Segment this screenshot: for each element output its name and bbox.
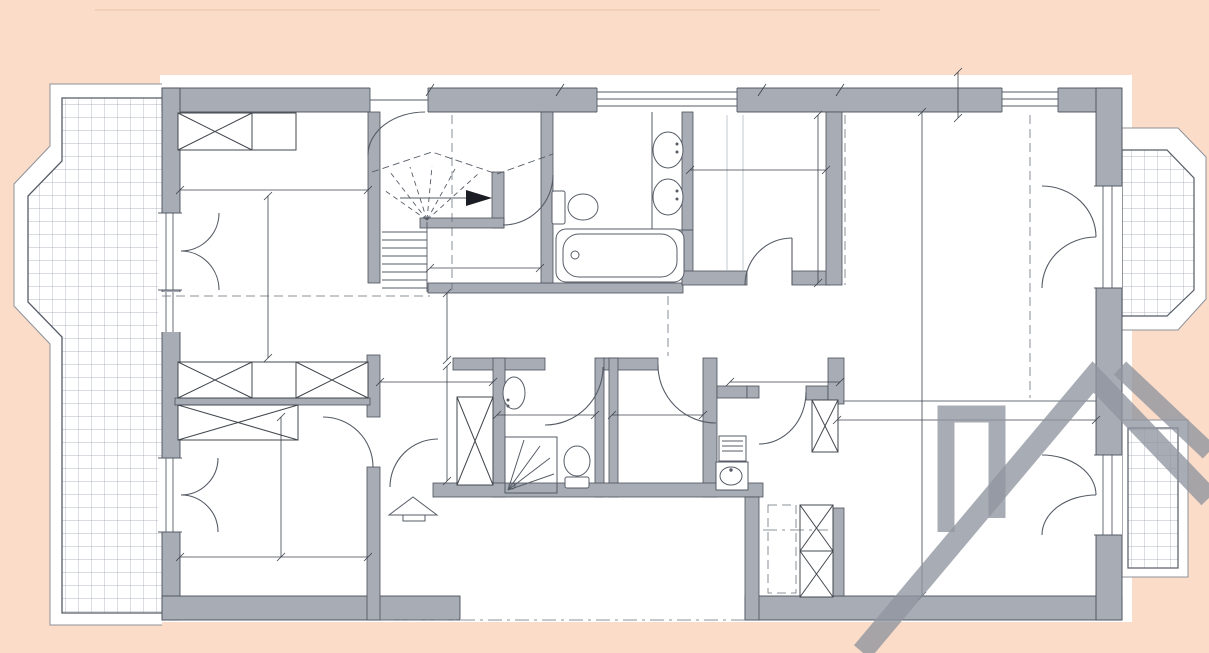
closet-hall — [457, 397, 493, 485]
floor-plan-drawing — [0, 0, 1209, 653]
washer-icon — [719, 436, 746, 461]
toilet-icon — [564, 446, 590, 488]
sink-icon — [503, 377, 525, 409]
sink-icon — [716, 462, 748, 490]
sink-icon — [653, 179, 683, 215]
closet-salon-1 — [800, 505, 833, 551]
bathtub-icon — [556, 229, 684, 282]
closet-row-lower — [178, 405, 298, 440]
closet-salon-2 — [800, 551, 833, 597]
balcony-salle-a-manger — [1122, 150, 1194, 316]
closet-master-top — [178, 113, 296, 150]
sink-icon — [653, 132, 683, 168]
closet-lingerie — [812, 400, 838, 452]
closet-row-upper — [178, 362, 368, 398]
floor-plan-page — [0, 0, 1209, 653]
drawing-sheet — [14, 75, 1206, 625]
terrace — [28, 98, 163, 613]
